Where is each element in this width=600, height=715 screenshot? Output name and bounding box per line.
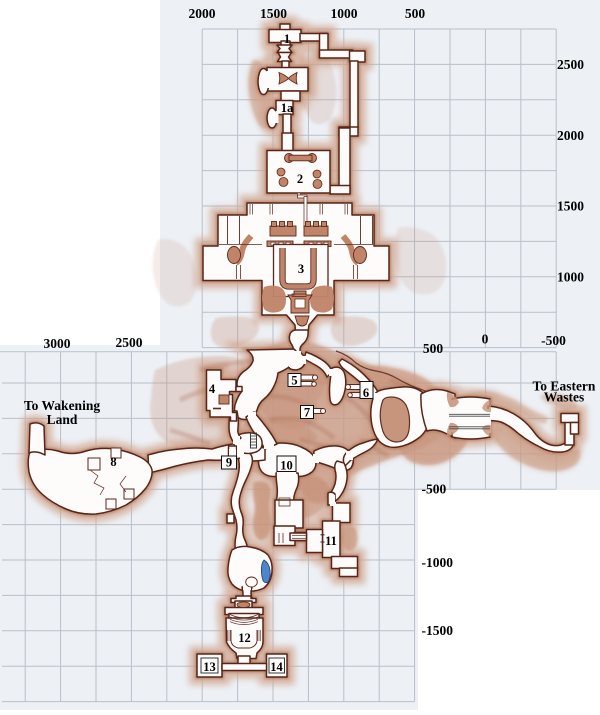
svg-text:1000: 1000 <box>331 6 358 21</box>
svg-text:1000: 1000 <box>557 270 584 285</box>
svg-text:0: 0 <box>482 332 489 347</box>
svg-text:2: 2 <box>297 172 303 186</box>
svg-text:-500: -500 <box>422 482 447 497</box>
svg-text:3000: 3000 <box>44 336 71 351</box>
svg-text:4: 4 <box>209 382 216 396</box>
svg-text:8: 8 <box>110 455 116 469</box>
svg-text:1500: 1500 <box>557 199 584 214</box>
svg-text:11: 11 <box>325 534 337 548</box>
svg-text:14: 14 <box>270 660 283 674</box>
svg-text:-1000: -1000 <box>422 555 454 570</box>
svg-text:Land: Land <box>47 412 78 427</box>
svg-text:-1500: -1500 <box>422 623 454 638</box>
svg-text:2000: 2000 <box>189 6 216 21</box>
svg-text:Wastes: Wastes <box>544 390 585 405</box>
svg-text:1: 1 <box>284 32 290 46</box>
svg-text:6: 6 <box>363 386 369 400</box>
svg-text:-500: -500 <box>541 333 566 348</box>
svg-text:500: 500 <box>423 341 444 356</box>
svg-text:2500: 2500 <box>116 335 143 350</box>
svg-text:2000: 2000 <box>557 128 584 143</box>
svg-text:9: 9 <box>226 456 232 470</box>
svg-text:13: 13 <box>203 660 216 674</box>
svg-text:2500: 2500 <box>557 57 584 72</box>
svg-text:5: 5 <box>291 374 297 388</box>
svg-text:10: 10 <box>280 459 293 473</box>
svg-text:1500: 1500 <box>260 6 287 21</box>
svg-text:3: 3 <box>298 262 304 276</box>
svg-text:To Wakening: To Wakening <box>24 398 100 413</box>
svg-text:12: 12 <box>238 631 251 645</box>
svg-text:500: 500 <box>405 6 426 21</box>
svg-text:1a: 1a <box>281 101 294 115</box>
svg-text:7: 7 <box>304 406 310 420</box>
